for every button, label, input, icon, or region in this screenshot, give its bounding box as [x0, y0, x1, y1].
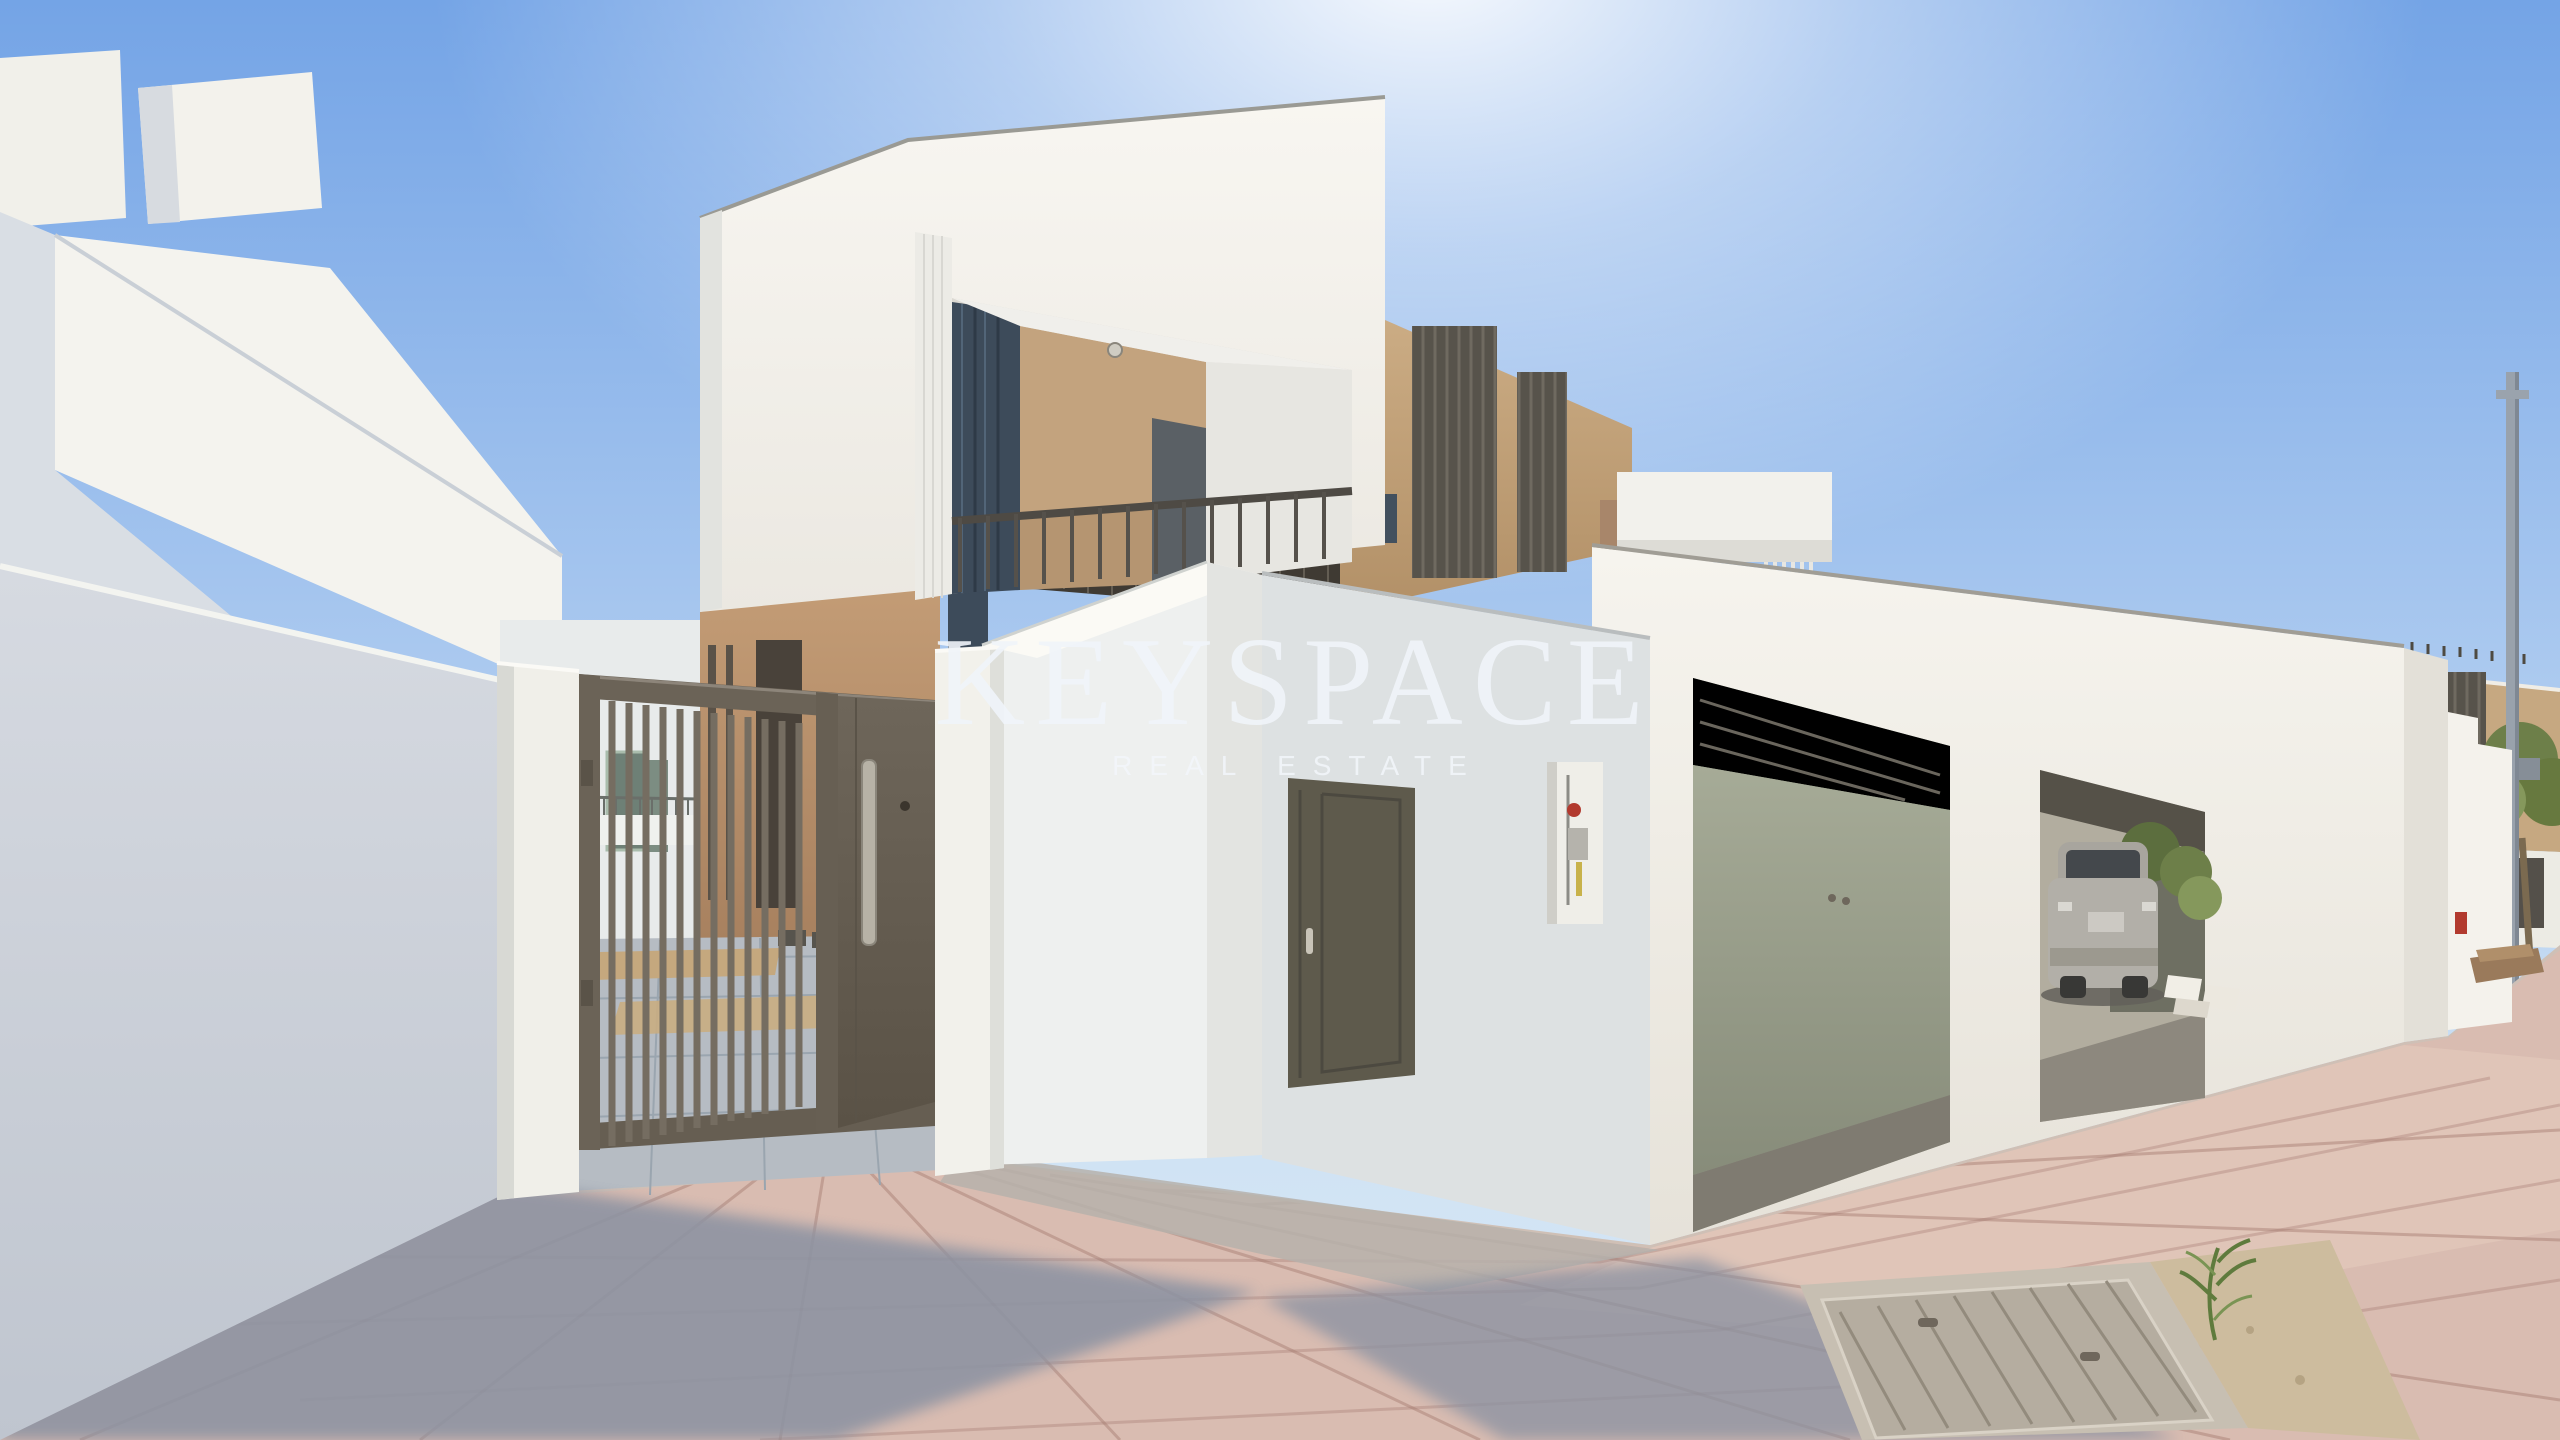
entrance-door: [1288, 778, 1415, 1088]
louvre-screen: [1517, 372, 1567, 572]
gate-hinge: [581, 980, 593, 1006]
gravel-strip: [592, 948, 780, 980]
entrance-wall: [1262, 573, 1650, 1245]
villa-photo-scene: KEYSPACE REAL ESTATE: [0, 0, 2560, 1440]
utility-niche: [1547, 762, 1603, 924]
gate-hinge: [581, 760, 593, 786]
gate-handle: [862, 760, 876, 945]
entry-gate: [497, 647, 1004, 1200]
porch-volume: [982, 562, 1262, 1165]
fire-point-marker: [2455, 912, 2467, 934]
red-valve: [1567, 803, 1581, 817]
garage-opening-left: [1693, 678, 1950, 1232]
gate-pillar-right: [935, 647, 1004, 1176]
photo-canvas: [0, 0, 2560, 1440]
ceiling-light: [1108, 343, 1122, 357]
louvre-screen: [1412, 326, 1497, 578]
gate-keyhole: [900, 801, 910, 811]
parked-car: [2041, 842, 2165, 1006]
gate-pillar-left: [497, 663, 579, 1200]
